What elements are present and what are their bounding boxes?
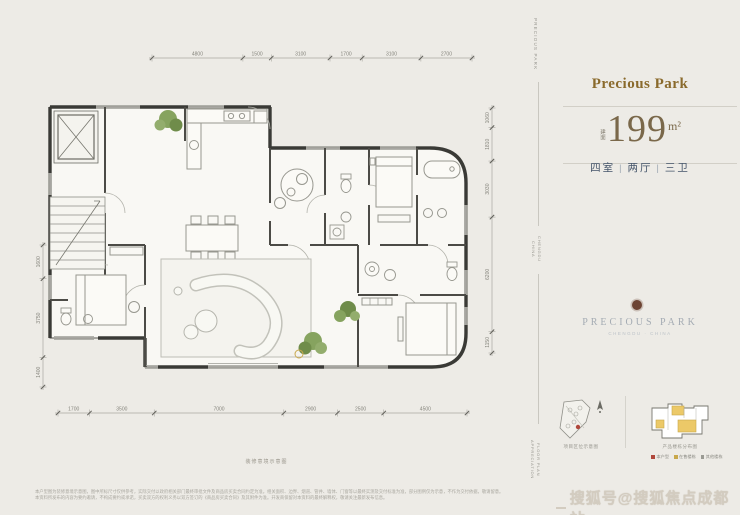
- legend-swatch: [701, 455, 705, 459]
- brand-title: Precious Park: [540, 76, 740, 93]
- svg-text:3750: 3750: [36, 312, 42, 323]
- site-map-caption: 项目区位示意图: [552, 444, 610, 450]
- svg-text:7000: 7000: [213, 407, 224, 413]
- floor-plan-caption: 装修意境示意图: [28, 458, 505, 465]
- dimension-chain-top: 480015003100170031002700: [149, 52, 475, 62]
- svg-text:3500: 3500: [116, 407, 127, 413]
- svg-text:6200: 6200: [485, 269, 491, 280]
- rail-line-lower: [538, 274, 539, 424]
- area-value: 199: [607, 110, 667, 148]
- key-plan: [648, 400, 712, 440]
- svg-text:1700: 1700: [68, 407, 79, 413]
- dimension-chain-right: 10601810303062001150: [485, 105, 496, 356]
- svg-text:1150: 1150: [485, 337, 491, 348]
- layout-tags: 四室|两厅|三卫: [540, 160, 740, 175]
- svg-text:1500: 1500: [252, 52, 263, 58]
- brand-logo-name: PRECIOUS PARK: [540, 317, 740, 328]
- svg-text:3100: 3100: [295, 52, 306, 58]
- svg-text:1810: 1810: [485, 139, 491, 150]
- legend-swatch: [651, 455, 655, 459]
- legend-item: 其他楼栋: [701, 454, 723, 460]
- rail-line-upper: [538, 82, 539, 226]
- living-rug: [161, 259, 311, 357]
- tag-separator: |: [657, 163, 661, 173]
- svg-text:2500: 2500: [355, 407, 366, 413]
- rail-top-label: PRECIOUS PARK: [532, 12, 538, 76]
- rail-bottom-label: FLOOR PLAN APPRECIATION: [529, 432, 541, 488]
- key-plan-legend: 本户型在售楼栋其他楼栋: [644, 454, 730, 460]
- key-plan-caption: 产品楼栋分布图: [648, 444, 712, 450]
- svg-text:1700: 1700: [341, 52, 352, 58]
- svg-text:3030: 3030: [485, 183, 491, 194]
- disclaimer-line-2: 本资料所发布的内容为要约邀请，不构成要约或承诺，买卖双方的权利义务以双方签订的《…: [35, 495, 513, 501]
- stairs: [50, 197, 105, 269]
- tag-halls: 两厅: [628, 162, 653, 174]
- dimension-chain-left: 160037501400: [36, 242, 47, 390]
- tag-rooms: 四室: [590, 162, 615, 174]
- page: 480015003100170031002700 170035007000290…: [0, 0, 740, 515]
- floor-plan: 480015003100170031002700 170035007000290…: [28, 45, 505, 440]
- rule-top: [563, 106, 737, 107]
- legend-label: 其他楼栋: [706, 454, 723, 460]
- legend-swatch: [674, 455, 678, 459]
- svg-text:4500: 4500: [420, 407, 431, 413]
- dimension-chain-bottom: 170035007000290025004500: [55, 407, 470, 417]
- watermark-dash: [556, 507, 566, 510]
- disclaimer: 本户型图为装修意境示意图，图中所标尺寸仅供参考，实际交付以政府相关部门最终审批文…: [35, 489, 513, 501]
- legend-label: 在售楼栋: [679, 454, 696, 460]
- svg-text:1060: 1060: [485, 112, 491, 123]
- legend-label: 本户型: [656, 454, 669, 460]
- tag-separator: |: [619, 163, 623, 173]
- area-unit: m²: [668, 119, 681, 134]
- legend-item: 在售楼栋: [674, 454, 696, 460]
- compass-icon: [597, 400, 603, 413]
- svg-text:4800: 4800: [192, 52, 203, 58]
- legend-item: 本户型: [651, 454, 669, 460]
- svg-text:1600: 1600: [36, 256, 42, 267]
- svg-text:2700: 2700: [441, 52, 452, 58]
- svg-text:1400: 1400: [36, 366, 42, 377]
- elevator-shaft: [54, 111, 98, 163]
- svg-text:2900: 2900: [305, 407, 316, 413]
- area-prefix: 建面: [599, 129, 605, 140]
- brand-logo-subtitle: CHENGDU · CHINA: [540, 331, 740, 336]
- site-map: [556, 398, 606, 444]
- svg-text:3100: 3100: [386, 52, 397, 58]
- brand-logo-dot: [632, 300, 642, 310]
- maps-divider: [625, 396, 626, 448]
- rail-middle-label: CHENGDU CHINA: [530, 230, 542, 268]
- watermark: 搜狐号@搜狐焦点成都站: [556, 487, 740, 515]
- area-figure: 建面 199 m²: [540, 110, 740, 148]
- watermark-text: 搜狐号@搜狐焦点成都站: [570, 487, 740, 515]
- tag-baths: 三卫: [665, 162, 690, 174]
- site-location-dot: [576, 425, 580, 429]
